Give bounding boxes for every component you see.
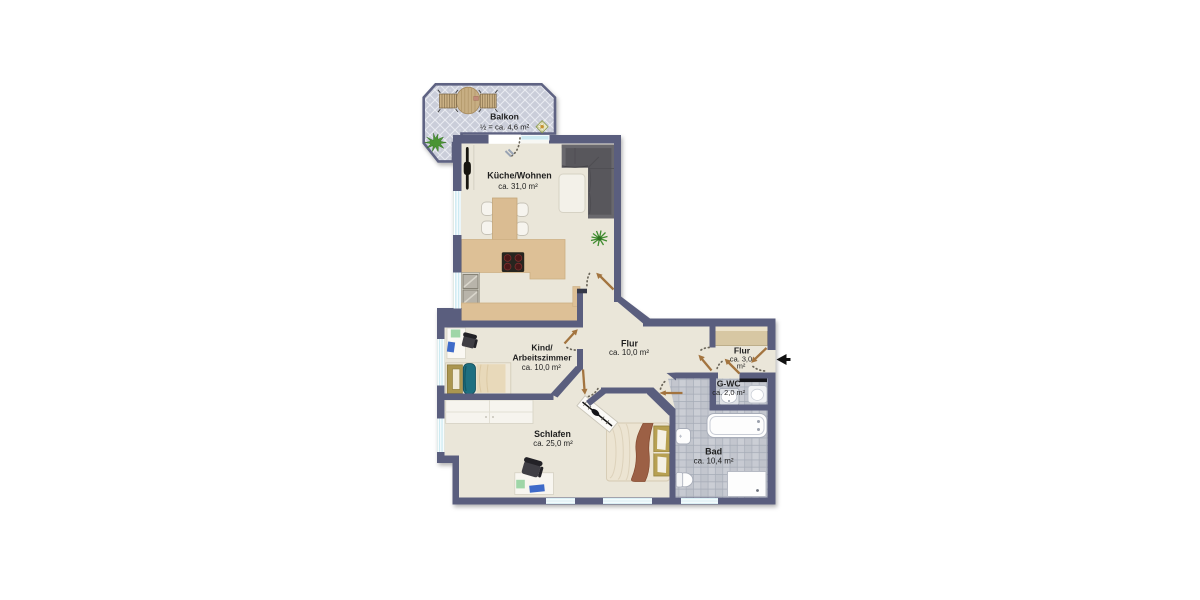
svg-text:Bad: Bad xyxy=(705,446,722,456)
svg-text:ca. 25,0 m²: ca. 25,0 m² xyxy=(533,439,573,448)
svg-text:Arbeitszimmer: Arbeitszimmer xyxy=(512,353,572,363)
svg-text:ca. 10,0 m²: ca. 10,0 m² xyxy=(522,363,561,372)
svg-text:m²: m² xyxy=(737,361,746,370)
svg-text:Flur: Flur xyxy=(621,338,638,348)
svg-text:ca. 2,0 m²: ca. 2,0 m² xyxy=(712,388,745,397)
svg-text:Kind/: Kind/ xyxy=(531,343,553,353)
svg-text:Küche/Wohnen: Küche/Wohnen xyxy=(487,170,551,180)
svg-text:ca. 10,0 m²: ca. 10,0 m² xyxy=(609,348,649,357)
svg-text:ca. 31,0 m²: ca. 31,0 m² xyxy=(498,182,538,191)
svg-text:Schlafen: Schlafen xyxy=(534,429,571,439)
svg-text:Balkon: Balkon xyxy=(490,111,519,121)
svg-text:½ = ca. 4,6 m²: ½ = ca. 4,6 m² xyxy=(480,123,530,132)
svg-text:ca. 10,4 m²: ca. 10,4 m² xyxy=(694,457,734,466)
